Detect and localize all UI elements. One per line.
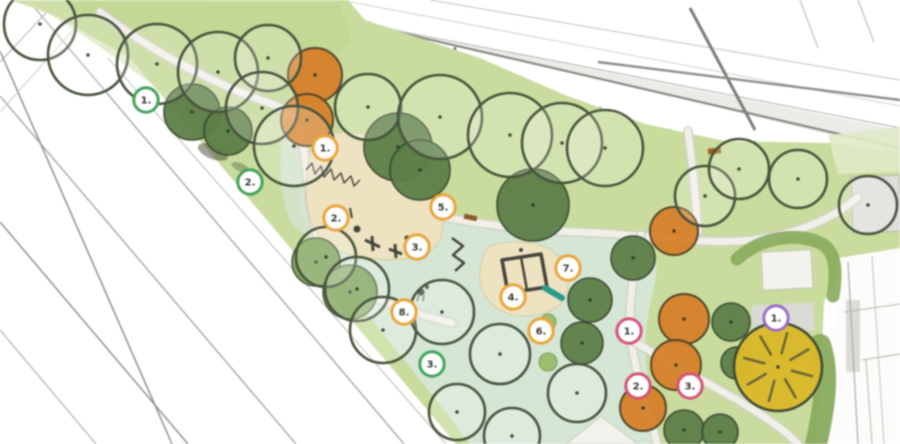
tree-center-dot bbox=[292, 144, 296, 148]
tree-center-dot bbox=[674, 363, 678, 367]
marker-number: 1. bbox=[771, 314, 782, 325]
tree-crown bbox=[702, 414, 738, 444]
tree-center-dot bbox=[737, 167, 741, 171]
marker-red-1: 1. bbox=[617, 319, 641, 343]
marker-number: 2. bbox=[245, 178, 256, 189]
tree-center-dot bbox=[455, 410, 459, 414]
tree-dark bbox=[664, 410, 704, 444]
tree-outline bbox=[429, 384, 485, 440]
marker-green-2: 2. bbox=[238, 170, 262, 194]
tree-center-dot bbox=[603, 146, 607, 150]
tree-center-dot bbox=[86, 53, 90, 57]
tree-center-dot bbox=[498, 352, 502, 356]
site-plan-map: 1.2.3.1.2.3.4.5.6.7.8.1.2.3.1. bbox=[0, 0, 900, 444]
tree-outline bbox=[548, 364, 606, 422]
tree-center-dot bbox=[313, 73, 317, 77]
tree-center-dot bbox=[575, 391, 579, 395]
tree-orange bbox=[659, 294, 709, 344]
tree-center-dot bbox=[438, 115, 442, 119]
tree-center-dot bbox=[38, 22, 42, 26]
tree-center-dot bbox=[703, 194, 707, 198]
lawn-light-patch bbox=[828, 127, 900, 174]
marker-orange-4: 4. bbox=[501, 285, 525, 309]
tree-center-dot bbox=[508, 133, 512, 137]
marker-number: 8. bbox=[399, 308, 410, 319]
tree-dark bbox=[561, 322, 603, 364]
marker-green-1: 1. bbox=[134, 88, 158, 112]
marker-number: 1. bbox=[320, 144, 331, 155]
play-equipment bbox=[372, 236, 373, 251]
tree-dark bbox=[702, 414, 738, 444]
marker-orange-6: 6. bbox=[529, 319, 553, 343]
tree-center-dot bbox=[324, 255, 328, 259]
tree-center-dot bbox=[418, 168, 422, 172]
tree-center-dot bbox=[580, 341, 584, 345]
marker-number: 4. bbox=[508, 293, 519, 304]
tree-center-dot bbox=[155, 62, 159, 66]
tree-yellow bbox=[734, 323, 822, 411]
tree-center-dot bbox=[266, 56, 270, 60]
tree-dark bbox=[611, 236, 655, 280]
tree-center-dot bbox=[641, 406, 645, 410]
tree-dark bbox=[712, 303, 750, 341]
tree-center-dot bbox=[531, 203, 535, 207]
shrub bbox=[539, 353, 557, 371]
tree-dark bbox=[568, 278, 612, 322]
marker-orange-2: 2. bbox=[324, 206, 348, 230]
tree-outline bbox=[769, 150, 827, 208]
tree-outline bbox=[410, 280, 474, 344]
marker-number: 6. bbox=[536, 327, 547, 338]
tree-center-dot bbox=[226, 129, 230, 133]
tree-center-dot bbox=[776, 365, 780, 369]
tree-center-dot bbox=[560, 141, 564, 145]
play-equipment bbox=[354, 226, 361, 233]
tree-outline bbox=[567, 110, 643, 186]
marker-purple-1: 1. bbox=[764, 306, 788, 330]
tree-outline bbox=[335, 74, 401, 140]
marker-number: 3. bbox=[427, 360, 438, 371]
stump bbox=[519, 248, 523, 252]
tree-center-dot bbox=[381, 328, 385, 332]
tree-center-dot bbox=[216, 70, 220, 74]
tree-center-dot bbox=[718, 430, 722, 434]
marker-red-2: 2. bbox=[626, 374, 650, 398]
tree-center-dot bbox=[796, 177, 800, 181]
tree-center-dot bbox=[682, 428, 686, 432]
tree-center-dot bbox=[682, 317, 686, 321]
marker-red-3: 3. bbox=[678, 374, 702, 398]
marker-orange-7: 7. bbox=[556, 256, 580, 280]
tree-center-dot bbox=[366, 105, 370, 109]
play-equipment bbox=[395, 244, 396, 258]
tree-center-dot bbox=[190, 110, 194, 114]
tree-center-dot bbox=[631, 256, 635, 260]
site-plan-screenshot: 1.2.3.1.2.3.4.5.6.7.8.1.2.3.1. bbox=[0, 0, 900, 444]
tree-center-dot bbox=[440, 310, 444, 314]
tree-outline bbox=[839, 176, 897, 234]
tree-center-dot bbox=[672, 229, 676, 233]
paved-white-square bbox=[761, 250, 813, 291]
marker-number: 2. bbox=[633, 382, 644, 393]
marker-number: 1. bbox=[141, 96, 152, 107]
marker-green-3: 3. bbox=[420, 352, 444, 376]
marker-number: 7. bbox=[563, 264, 574, 275]
tree-center-dot bbox=[510, 434, 514, 438]
tree-center-dot bbox=[866, 203, 870, 207]
marker-orange-8: 8. bbox=[392, 300, 416, 324]
tree-outline bbox=[709, 139, 769, 199]
marker-orange-3: 3. bbox=[405, 235, 429, 259]
marker-orange-5: 5. bbox=[431, 195, 455, 219]
marker-number: 2. bbox=[331, 214, 342, 225]
tree-outline bbox=[48, 15, 128, 95]
tree-center-dot bbox=[355, 287, 359, 291]
marker-number: 5. bbox=[438, 203, 449, 214]
tree-outline bbox=[470, 324, 530, 384]
marker-number: 1. bbox=[624, 327, 635, 338]
tree-center-dot bbox=[260, 106, 264, 110]
marker-number: 3. bbox=[412, 243, 423, 254]
tree-center-dot bbox=[729, 320, 733, 324]
tree-crown bbox=[664, 410, 704, 444]
tree-center-dot bbox=[588, 298, 592, 302]
marker-number: 3. bbox=[685, 382, 696, 393]
marker-orange-1: 1. bbox=[313, 136, 337, 160]
